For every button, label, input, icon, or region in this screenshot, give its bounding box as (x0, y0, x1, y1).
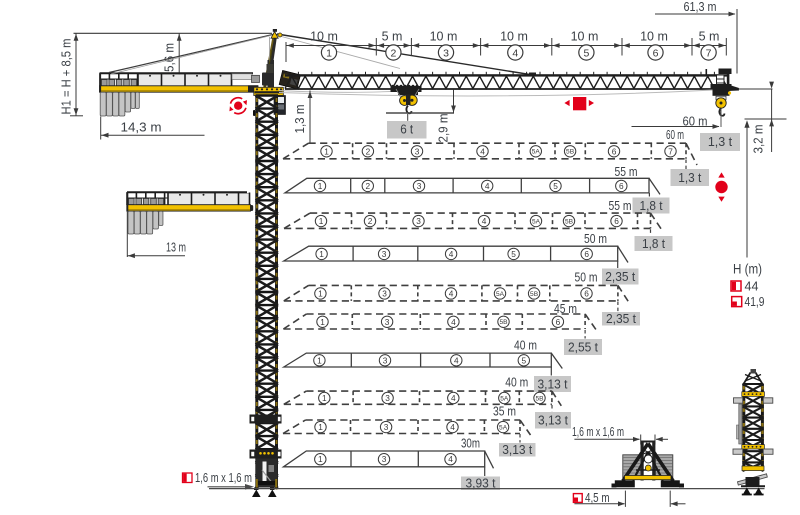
svg-text:7: 7 (668, 146, 673, 156)
svg-text:50 m: 50 m (575, 271, 598, 285)
svg-text:5 m: 5 m (382, 30, 403, 44)
svg-text:1: 1 (326, 47, 332, 59)
svg-text:6: 6 (614, 216, 619, 226)
svg-text:4: 4 (480, 146, 485, 156)
svg-text:2: 2 (366, 146, 371, 156)
svg-text:1: 1 (324, 146, 329, 156)
svg-text:1,8 t: 1,8 t (642, 237, 665, 251)
svg-text:6: 6 (584, 288, 589, 298)
svg-text:6: 6 (653, 47, 659, 59)
svg-text:5A: 5A (500, 395, 509, 402)
svg-text:10 m: 10 m (640, 30, 668, 44)
svg-text:3: 3 (384, 422, 389, 432)
svg-text:4: 4 (450, 422, 455, 432)
svg-text:2,35 t: 2,35 t (606, 312, 636, 326)
svg-text:2: 2 (368, 216, 373, 226)
svg-text:5: 5 (511, 249, 516, 259)
svg-text:5B: 5B (566, 149, 575, 156)
svg-text:50 m: 50 m (584, 232, 607, 246)
svg-text:1: 1 (318, 288, 323, 298)
svg-text:4: 4 (449, 288, 454, 298)
svg-text:13 m: 13 m (166, 241, 186, 255)
svg-text:3: 3 (385, 317, 390, 327)
svg-text:6: 6 (612, 146, 617, 156)
svg-text:61,3 m: 61,3 m (684, 0, 717, 14)
svg-text:40 m: 40 m (505, 376, 528, 390)
svg-text:55 m: 55 m (609, 199, 632, 213)
svg-text:5A: 5A (499, 424, 508, 431)
svg-text:3: 3 (443, 47, 449, 59)
svg-text:3: 3 (416, 216, 421, 226)
svg-text:14,3 m: 14,3 m (121, 121, 162, 135)
svg-text:1,3 t: 1,3 t (708, 135, 733, 149)
svg-text:55 m: 55 m (615, 165, 638, 179)
svg-text:1: 1 (317, 355, 322, 365)
svg-text:1,6 m x 1,6 m: 1,6 m x 1,6 m (572, 425, 624, 439)
svg-text:5 m: 5 m (699, 30, 720, 44)
svg-text:5A: 5A (532, 149, 541, 156)
svg-text:6: 6 (556, 317, 561, 327)
svg-text:3: 3 (382, 249, 387, 259)
svg-text:45 m: 45 m (554, 302, 577, 316)
svg-text:H (m): H (m) (733, 262, 762, 277)
svg-text:5: 5 (553, 181, 558, 191)
svg-text:10 m: 10 m (430, 30, 458, 44)
svg-text:3: 3 (382, 288, 387, 298)
svg-text:1: 1 (322, 393, 327, 403)
svg-text:1,3 m: 1,3 m (293, 105, 307, 134)
svg-text:5: 5 (583, 47, 589, 59)
svg-text:2,55 t: 2,55 t (568, 340, 598, 354)
svg-text:60 m: 60 m (666, 128, 684, 142)
svg-text:6: 6 (619, 181, 624, 191)
svg-text:41,9: 41,9 (745, 295, 765, 309)
svg-text:4: 4 (512, 47, 518, 59)
svg-text:3: 3 (417, 181, 422, 191)
svg-text:1: 1 (318, 454, 323, 464)
svg-text:2: 2 (365, 181, 370, 191)
svg-text:5A: 5A (496, 291, 505, 298)
svg-text:5A: 5A (532, 218, 541, 225)
svg-text:4,5 m: 4,5 m (585, 491, 610, 505)
svg-text:5B: 5B (530, 291, 539, 298)
svg-text:4: 4 (454, 355, 459, 365)
svg-text:5B: 5B (499, 319, 508, 326)
svg-text:4: 4 (485, 181, 490, 191)
svg-text:30m: 30m (461, 437, 480, 451)
svg-text:40 m: 40 m (514, 339, 537, 353)
svg-text:10 m: 10 m (571, 30, 599, 44)
svg-text:3: 3 (382, 454, 387, 464)
svg-text:7: 7 (706, 47, 712, 59)
svg-text:1: 1 (318, 181, 323, 191)
svg-text:1: 1 (318, 422, 323, 432)
svg-text:1,6 m x 1,6 m: 1,6 m x 1,6 m (195, 471, 252, 485)
svg-text:4: 4 (451, 393, 456, 403)
svg-text:4: 4 (449, 249, 454, 259)
svg-text:4: 4 (448, 454, 453, 464)
svg-text:2: 2 (390, 47, 396, 59)
svg-text:5B: 5B (535, 395, 544, 402)
svg-text:3,13 t: 3,13 t (502, 443, 532, 457)
svg-text:1: 1 (320, 317, 325, 327)
svg-text:1: 1 (319, 249, 324, 259)
svg-text:2,9 m: 2,9 m (436, 114, 450, 143)
svg-text:1,8 t: 1,8 t (640, 199, 663, 213)
svg-text:3,2 m: 3,2 m (751, 125, 765, 154)
svg-text:3: 3 (383, 355, 388, 365)
svg-text:2,35 t: 2,35 t (605, 270, 635, 284)
svg-text:4: 4 (482, 216, 487, 226)
svg-text:3: 3 (385, 393, 390, 403)
svg-text:44: 44 (745, 280, 759, 294)
svg-text:6: 6 (584, 249, 589, 259)
svg-text:3: 3 (415, 146, 420, 156)
svg-text:4: 4 (451, 317, 456, 327)
svg-text:3,13 t: 3,13 t (538, 414, 568, 428)
svg-text:1,3 t: 1,3 t (678, 171, 701, 185)
svg-text:6 t: 6 t (400, 123, 413, 137)
svg-text:5: 5 (521, 355, 526, 365)
svg-text:3,13 t: 3,13 t (538, 377, 568, 391)
svg-text:10 m: 10 m (310, 30, 338, 44)
svg-text:5B: 5B (565, 218, 574, 225)
svg-text:10 m: 10 m (500, 30, 528, 44)
svg-text:H1 = H + 8,5 m: H1 = H + 8,5 m (60, 39, 74, 115)
svg-text:35 m: 35 m (493, 405, 516, 419)
svg-text:1: 1 (319, 216, 324, 226)
